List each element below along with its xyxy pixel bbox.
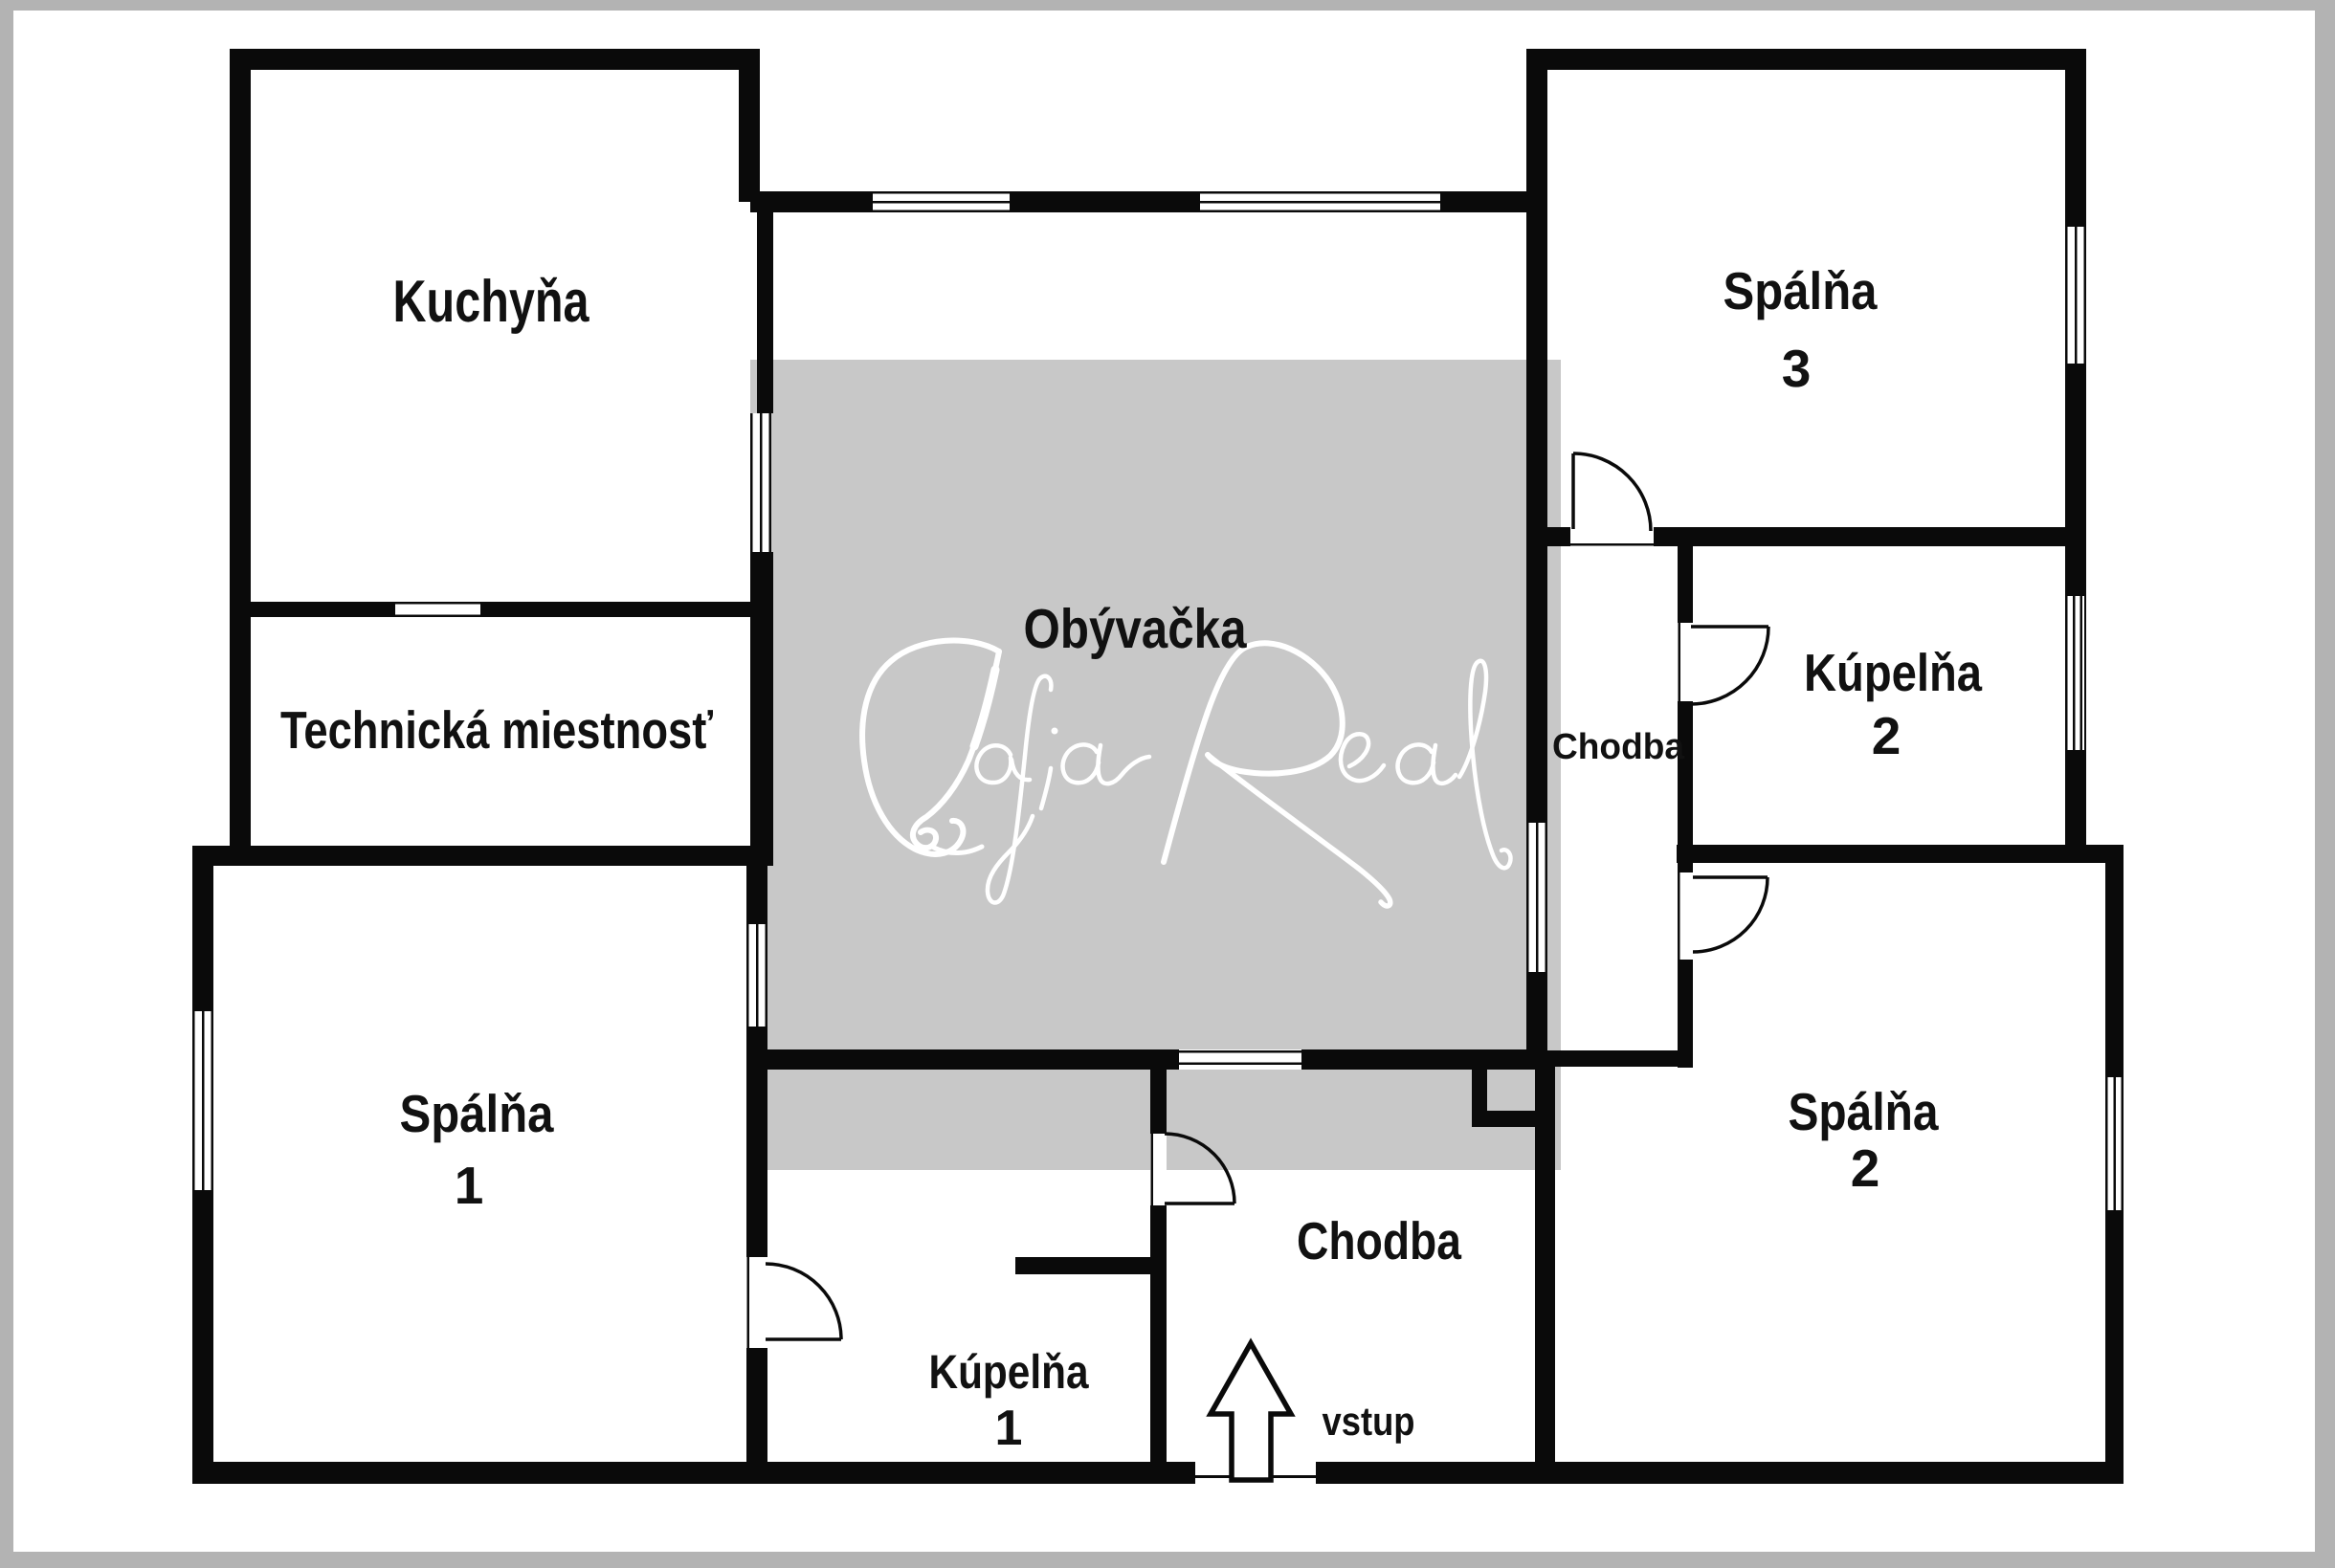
svg-text:Kúpelňa: Kúpelňa bbox=[929, 1345, 1090, 1399]
svg-text:Chodba: Chodba bbox=[1297, 1211, 1461, 1270]
svg-text:Spálňa: Spálňa bbox=[1723, 261, 1878, 320]
svg-text:1: 1 bbox=[995, 1401, 1023, 1456]
svg-text:Chodba: Chodba bbox=[1552, 727, 1685, 767]
svg-text:Kuchyňa: Kuchyňa bbox=[393, 269, 589, 335]
svg-text:3: 3 bbox=[1782, 339, 1812, 398]
svg-text:Spálňa: Spálňa bbox=[1789, 1082, 1939, 1141]
svg-text:Kúpelňa: Kúpelňa bbox=[1804, 643, 1982, 702]
svg-text:2: 2 bbox=[1851, 1138, 1880, 1198]
svg-text:Technická miestnosť: Technická miestnosť bbox=[280, 700, 714, 760]
svg-text:2: 2 bbox=[1872, 706, 1901, 765]
svg-text:vstup: vstup bbox=[1323, 1399, 1415, 1444]
svg-text:Obývačka: Obývačka bbox=[1024, 598, 1248, 660]
svg-text:Spálňa: Spálňa bbox=[400, 1084, 554, 1143]
svg-text:1: 1 bbox=[455, 1156, 484, 1215]
